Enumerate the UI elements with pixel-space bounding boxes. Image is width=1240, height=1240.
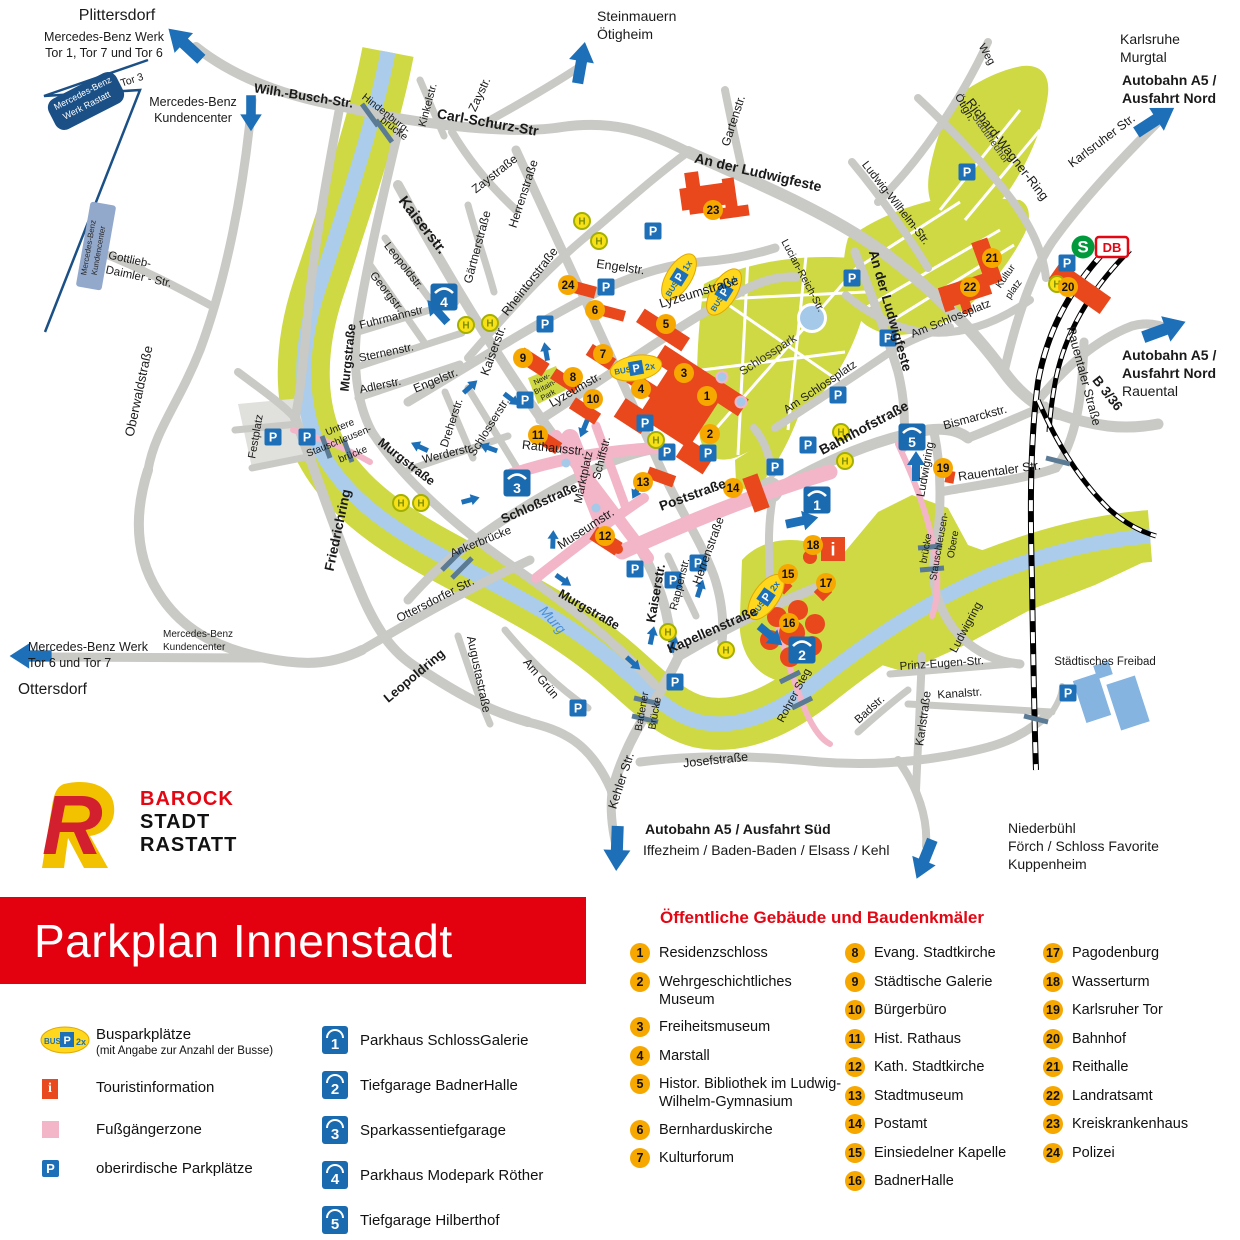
poi-number-badge: 9 [845, 972, 865, 992]
svg-text:H: H [578, 217, 585, 228]
svg-text:23: 23 [707, 205, 720, 217]
map-label: Ottersdorf [18, 681, 88, 698]
parking-icon: P [537, 316, 554, 333]
parking-icon: P [598, 279, 615, 296]
bus-stop-icon: H [837, 453, 853, 469]
tourist-info-icon: i [821, 537, 845, 561]
parkhaus-icon-3: 3 [504, 470, 531, 497]
svg-text:22: 22 [964, 282, 977, 294]
svg-text:P: P [521, 394, 529, 408]
parking-icon: P [844, 270, 861, 287]
svg-text:20: 20 [1062, 282, 1075, 294]
poi-number-badge: 3 [630, 1017, 650, 1037]
poi-number-badge: 19 [1043, 1000, 1063, 1020]
poi-number-badge: 1 [630, 943, 650, 963]
poi-number-badge: 12 [845, 1057, 865, 1077]
svg-text:S: S [1077, 238, 1088, 257]
poi-marker-5: 5 [656, 314, 676, 334]
svg-text:10: 10 [587, 394, 600, 406]
poi-number-badge: 15 [845, 1143, 865, 1163]
svg-text:2: 2 [707, 429, 713, 441]
sbahn-logo: S [1072, 236, 1095, 259]
poi-label: Landratsamt [1072, 1087, 1153, 1105]
parking-icon: P [570, 700, 587, 717]
map-label: Iffezheim / Baden-Baden / Elsass / Kehl [643, 842, 889, 858]
poi-item: 13Stadtmuseum [845, 1087, 1060, 1106]
svg-text:P: P [541, 318, 549, 332]
poi-number-badge: 4 [630, 1046, 650, 1066]
poi-number-badge: 10 [845, 1000, 865, 1020]
map-label: Rauental [1122, 383, 1178, 399]
svg-text:P: P [834, 389, 842, 403]
symbol-legend: BUS P 2x Busparkplätze (mit Angabe zur A… [40, 1026, 310, 1199]
bus-stop-icon: H [393, 495, 409, 511]
poi-label: Kreiskrankenhaus [1072, 1115, 1188, 1133]
map-label: Förch / Schloss Favorite [1008, 838, 1159, 854]
parkhaus-legend-item: 2Tiefgarage BadnerHalle [322, 1071, 592, 1099]
surface-parking-icon: P [42, 1160, 59, 1177]
poi-label: Evang. Stadtkirche [874, 944, 996, 962]
svg-text:18: 18 [807, 540, 820, 552]
logo-r-icon: R [34, 776, 126, 872]
direction-arrow [603, 826, 632, 872]
parking-icon: P [265, 429, 282, 446]
poi-column-3: 17Pagodenburg18Wasserturm19Karlsruher To… [1043, 944, 1240, 1172]
parking-icon: P [637, 415, 654, 432]
poi-marker-6: 6 [585, 300, 605, 320]
map-label: Josefstraße [682, 750, 748, 771]
parkhaus-legend-label: Parkhaus Modepark Röther [360, 1167, 543, 1184]
map-label: Kundencenter [154, 111, 232, 125]
parking-icon: P [517, 392, 534, 409]
bus-stop-icon: H [648, 432, 664, 448]
legend-item-label: oberirdische Parkplätze [96, 1160, 253, 1177]
poi-label: Städtische Galerie [874, 973, 992, 991]
poi-marker-16: 16 [779, 613, 799, 633]
poi-label: Postamt [874, 1115, 927, 1133]
poi-marker-9: 9 [513, 348, 533, 368]
map-label: Kundencenter [163, 642, 226, 653]
poi-number-badge: 24 [1043, 1143, 1063, 1163]
map-label: Ausfahrt Nord [1122, 90, 1216, 106]
map-svg: BUSP1xBUSP1xBUSP2xBUSP2x PPPPPPPPPPPPPPP… [0, 0, 1240, 896]
map-label: Karlstraße [912, 690, 934, 747]
poi-item: 15Einsiedelner Kapelle [845, 1144, 1060, 1163]
svg-text:i: i [830, 540, 835, 560]
poi-label: Histor. Bibliothek im Ludwig-Wilhelm-Gym… [659, 1075, 845, 1111]
poi-item: 16BadnerHalle [845, 1172, 1060, 1191]
svg-text:H: H [722, 646, 729, 657]
db-logo: DB [1096, 237, 1128, 257]
logo-line3: RASTATT [140, 834, 237, 857]
svg-text:P: P [303, 431, 311, 445]
svg-text:P: P [963, 166, 971, 180]
parking-icon: P [959, 164, 976, 181]
poi-label: Wasserturm [1072, 973, 1150, 991]
bus-stop-icon: H [458, 317, 474, 333]
svg-text:H: H [462, 321, 469, 332]
map-label: Kanalstr. [937, 686, 982, 701]
parking-icon: P [299, 429, 316, 446]
parkhaus-legend-label: Tiefgarage BadnerHalle [360, 1077, 518, 1094]
poi-item: 2Wehrgeschichtliches Museum [630, 973, 845, 1009]
svg-text:2x: 2x [644, 361, 656, 373]
svg-text:H: H [841, 457, 848, 468]
poi-marker-2: 2 [700, 424, 720, 444]
city-map: BUSP1xBUSP1xBUSP2xBUSP2x PPPPPPPPPPPPPPP… [0, 0, 1240, 896]
oneway-arrow [645, 625, 660, 646]
svg-text:12: 12 [599, 531, 612, 543]
poi-number-badge: 21 [1043, 1057, 1063, 1077]
map-label: Steinmauern [597, 8, 676, 24]
poi-marker-15: 15 [778, 564, 798, 584]
svg-text:9: 9 [520, 353, 526, 365]
svg-text:P: P [804, 439, 812, 453]
legend-surface-parking: P oberirdische Parkplätze [40, 1160, 310, 1177]
poi-item: 8Evang. Stadtkirche [845, 944, 1060, 963]
svg-text:5: 5 [908, 434, 916, 450]
poi-marker-4: 4 [631, 379, 651, 399]
svg-text:P: P [771, 461, 779, 475]
poi-label: Hist. Rathaus [874, 1030, 961, 1048]
parking-icon: P [1060, 685, 1077, 702]
poi-item: 4Marstall [630, 1047, 845, 1066]
map-label: Autobahn A5 / Ausfahrt Süd [645, 821, 831, 837]
poi-item: 20Bahnhof [1043, 1030, 1240, 1049]
logo-line2: STADT [140, 811, 237, 834]
map-label: Kuppenheim [1008, 856, 1087, 872]
bus-parking-icon: BUS P 2x [40, 1026, 90, 1054]
parking-icon: P [627, 561, 644, 578]
poi-column-2: 8Evang. Stadtkirche9Städtische Galerie10… [845, 944, 1060, 1201]
title-bar: Parkplan Innenstadt [0, 897, 586, 984]
parking-icon: P [1059, 255, 1076, 272]
svg-text:H: H [595, 237, 602, 248]
direction-arrow [565, 40, 597, 86]
svg-text:H: H [652, 436, 659, 447]
poi-heading: Öffentliche Gebäude und Baudenkmäler [660, 908, 984, 928]
svg-text:H: H [417, 499, 424, 510]
parkhaus-legend: 1Parkhaus SchlossGalerie2Tiefgarage Badn… [322, 1026, 592, 1240]
parkhaus-legend-label: Parkhaus SchlossGalerie [360, 1032, 528, 1049]
pedestrian-zone-swatch [42, 1121, 59, 1138]
svg-text:P: P [631, 563, 639, 577]
bus-stop-icon: H [591, 233, 607, 249]
svg-text:5: 5 [663, 319, 670, 331]
map-label: Mercedes-Benz Werk [28, 640, 149, 654]
poi-marker-24: 24 [558, 275, 578, 295]
parkhaus-icon: 2 [322, 1071, 348, 1099]
parkhaus-legend-item: 3Sparkassentiefgarage [322, 1116, 592, 1144]
map-label: Gartenstr. [718, 94, 748, 148]
parkhaus-legend-label: Sparkassentiefgarage [360, 1122, 506, 1139]
svg-text:P: P [269, 431, 277, 445]
svg-text:BUS: BUS [44, 1037, 62, 1046]
poi-item: 12Kath. Stadtkirche [845, 1058, 1060, 1077]
poi-label: Kath. Stadtkirche [874, 1058, 984, 1076]
map-label: Engelstr. [595, 257, 645, 278]
poi-label: Kulturforum [659, 1149, 734, 1167]
svg-text:15: 15 [782, 569, 795, 581]
svg-text:H: H [397, 499, 404, 510]
map-label: Autobahn A5 / [1122, 347, 1216, 363]
poi-number-badge: 22 [1043, 1086, 1063, 1106]
poi-item: 9Städtische Galerie [845, 973, 1060, 992]
parkhaus-icon-5: 5 [899, 424, 926, 451]
svg-text:3: 3 [513, 480, 521, 496]
svg-text:P: P [704, 447, 712, 461]
svg-text:14: 14 [727, 483, 740, 495]
poi-marker-7: 7 [593, 344, 613, 364]
svg-text:H: H [664, 628, 671, 639]
parkhaus-icon-2: 2 [789, 637, 816, 664]
poi-item: 14Postamt [845, 1115, 1060, 1134]
svg-text:4: 4 [638, 384, 645, 396]
svg-text:16: 16 [783, 618, 796, 630]
poi-label: Bahnhof [1072, 1030, 1126, 1048]
poi-item: 19Karlsruher Tor [1043, 1001, 1240, 1020]
poi-marker-23: 23 [703, 200, 723, 220]
parkhaus-icon: 4 [322, 1161, 348, 1189]
poi-number-badge: 23 [1043, 1114, 1063, 1134]
poi-label: Residenzschloss [659, 944, 768, 962]
bus-stop-icon: H [574, 213, 590, 229]
map-label: Rheintorstraße [499, 245, 561, 319]
poi-item: 24Polizei [1043, 1144, 1240, 1163]
poi-label: Bernharduskirche [659, 1121, 773, 1139]
poi-number-badge: 16 [845, 1171, 865, 1191]
map-label: Städtisches Freibad [1054, 656, 1156, 668]
svg-text:24: 24 [562, 280, 575, 292]
map-label: Zaystr. [465, 75, 493, 114]
map-label: Tor 3 [119, 71, 145, 90]
poi-label: Bürgerbüro [874, 1001, 947, 1019]
legend-bus-sub: (mit Angabe zur Anzahl der Busse) [96, 1045, 273, 1057]
poi-label: Wehrgeschichtliches Museum [659, 973, 845, 1009]
map-label: Ötigheim [597, 25, 653, 42]
map-label: Mercedes-Benz Werk [44, 30, 165, 44]
poi-item: 5Histor. Bibliothek im Ludwig-Wilhelm-Gy… [630, 1075, 845, 1111]
parkhaus-legend-item: 1Parkhaus SchlossGalerie [322, 1026, 592, 1054]
poi-marker-17: 17 [816, 573, 836, 593]
legend-item-label: Touristinformation [96, 1079, 214, 1096]
map-label: Wilh.-Busch-Str. [253, 80, 354, 111]
freibad-buildings [1073, 661, 1150, 731]
map-label: Karlsruher Str. [1065, 111, 1137, 170]
poi-item: 21Reithalle [1043, 1058, 1240, 1077]
poi-label: Polizei [1072, 1144, 1115, 1162]
map-label: Georgstr. [367, 270, 406, 315]
map-label: Plittersdorf [79, 7, 156, 24]
parkhaus-icon-4: 4 [431, 284, 458, 311]
legend-bus-label: Busparkplätze [96, 1026, 273, 1043]
svg-text:7: 7 [600, 349, 606, 361]
map-label: Karlsruhe [1120, 31, 1180, 47]
svg-text:P: P [663, 446, 671, 460]
poi-marker-18: 18 [803, 535, 823, 555]
poi-item: 18Wasserturm [1043, 973, 1240, 992]
parkhaus-legend-item: 5Tiefgarage Hilberthof [322, 1206, 592, 1234]
poi-label: Pagodenburg [1072, 944, 1159, 962]
poi-number-badge: 5 [630, 1074, 650, 1094]
poi-marker-3: 3 [674, 363, 694, 383]
svg-text:17: 17 [820, 578, 833, 590]
legend-pedestrian: Fußgängerzone [40, 1121, 310, 1138]
bus-stop-icon: H [718, 642, 734, 658]
map-label: Mercedes-Benz [149, 95, 237, 109]
poi-marker-22: 22 [960, 277, 980, 297]
poi-marker-13: 13 [633, 472, 653, 492]
parking-icon: P [700, 445, 717, 462]
poi-label: Reithalle [1072, 1058, 1128, 1076]
poi-marker-21: 21 [982, 248, 1002, 268]
direction-arrow [1139, 309, 1191, 350]
poi-number-badge: 6 [630, 1120, 650, 1140]
map-label: Tor 1, Tor 7 und Tor 6 [45, 46, 163, 60]
poi-label: Marstall [659, 1047, 710, 1065]
parkhaus-icon-1: 1 [804, 487, 831, 514]
svg-text:P: P [1063, 257, 1071, 271]
poi-item: 3Freiheitsmuseum [630, 1018, 845, 1037]
parking-icon: P [830, 387, 847, 404]
bus-stop-icon: H [660, 624, 676, 640]
parkhaus-icon: 3 [322, 1116, 348, 1144]
oneway-arrow [460, 492, 481, 508]
parking-icon: P [767, 459, 784, 476]
legend-item-label: Fußgängerzone [96, 1121, 202, 1138]
svg-text:P: P [671, 676, 679, 690]
page: BUSP1xBUSP1xBUSP2xBUSP2x PPPPPPPPPPPPPPP… [0, 0, 1240, 1240]
poi-marker-1: 1 [697, 386, 717, 406]
parkhaus-legend-item: 4Parkhaus Modepark Röther [322, 1161, 592, 1189]
svg-text:P: P [649, 225, 657, 239]
poi-number-badge: 2 [630, 972, 650, 992]
poi-number-badge: 18 [1043, 972, 1063, 992]
parkhaus-icon: 5 [322, 1206, 348, 1234]
poi-number-badge: 13 [845, 1086, 865, 1106]
tourist-info-icon: i [42, 1079, 58, 1099]
map-label: Niederbühl [1008, 820, 1076, 836]
map-label: Mercedes-Benz [163, 629, 233, 640]
svg-text:H: H [486, 319, 493, 330]
svg-text:21: 21 [986, 253, 999, 265]
poi-item: 6Bernharduskirche [630, 1121, 845, 1140]
svg-text:1: 1 [704, 391, 711, 403]
parking-icon: P [645, 223, 662, 240]
poi-label: Karlsruher Tor [1072, 1001, 1163, 1019]
map-label: Kaiserstr. [395, 193, 451, 257]
poi-item: 1Residenzschloss [630, 944, 845, 963]
barock-stadt-rastatt-logo: R BAROCK STADT RASTATT [34, 776, 237, 872]
svg-text:P: P [574, 702, 582, 716]
poi-item: 23Kreiskrankenhaus [1043, 1115, 1240, 1134]
parkhaus-icon: 1 [322, 1026, 348, 1054]
svg-text:P: P [1064, 687, 1072, 701]
poi-number-badge: 14 [845, 1114, 865, 1134]
map-label: Ausfahrt Nord [1122, 365, 1216, 381]
poi-label: Einsiedelner Kapelle [874, 1144, 1006, 1162]
map-label: Sternenstr. [358, 341, 415, 364]
poi-number-badge: 20 [1043, 1029, 1063, 1049]
parking-icon: P [667, 674, 684, 691]
svg-text:R: R [42, 778, 103, 872]
svg-text:2: 2 [798, 647, 806, 663]
poi-label: BadnerHalle [874, 1172, 954, 1190]
svg-text:DB: DB [1103, 240, 1122, 255]
poi-marker-20: 20 [1058, 277, 1078, 297]
map-label: Oberwaldstraße [122, 344, 156, 438]
svg-text:2x: 2x [76, 1037, 86, 1047]
svg-text:1: 1 [813, 497, 821, 513]
legend-touristinfo: i Touristinformation [40, 1079, 310, 1099]
page-title: Parkplan Innenstadt [34, 914, 453, 968]
map-label: Autobahn A5 / [1122, 72, 1216, 88]
poi-item: 11Hist. Rathaus [845, 1030, 1060, 1049]
svg-text:P: P [64, 1035, 71, 1047]
svg-text:13: 13 [637, 477, 650, 489]
poi-item: 17Pagodenburg [1043, 944, 1240, 963]
svg-text:P: P [848, 272, 856, 286]
poi-label: Freiheitsmuseum [659, 1018, 770, 1036]
svg-text:4: 4 [440, 294, 448, 310]
svg-text:P: P [602, 281, 610, 295]
svg-text:6: 6 [592, 305, 598, 317]
direction-arrow [159, 19, 210, 69]
svg-text:3: 3 [681, 368, 687, 380]
map-label: Murgtal [1120, 49, 1167, 65]
map-label: Tor 6 und Tor 7 [28, 656, 111, 670]
poi-item: 22Landratsamt [1043, 1087, 1240, 1106]
poi-number-badge: 11 [845, 1029, 865, 1049]
logo-line1: BAROCK [140, 788, 237, 811]
bus-stop-icon: H [413, 495, 429, 511]
parkhaus-legend-label: Tiefgarage Hilberthof [360, 1212, 500, 1229]
poi-number-badge: 7 [630, 1148, 650, 1168]
poi-item: 10Bürgerbüro [845, 1001, 1060, 1020]
poi-item: 7Kulturforum [630, 1149, 845, 1168]
poi-column-1: 1Residenzschloss2Wehrgeschichtliches Mus… [630, 944, 845, 1178]
svg-text:P: P [641, 417, 649, 431]
poi-number-badge: 8 [845, 943, 865, 963]
poi-marker-19: 19 [933, 458, 953, 478]
parking-icon: P [800, 437, 817, 454]
direction-arrow [240, 95, 262, 131]
legend-busparking: BUS P 2x Busparkplätze (mit Angabe zur A… [40, 1026, 310, 1057]
poi-label: Stadtmuseum [874, 1087, 963, 1105]
poi-number-badge: 17 [1043, 943, 1063, 963]
svg-text:19: 19 [937, 463, 950, 475]
poi-marker-10: 10 [583, 389, 603, 409]
